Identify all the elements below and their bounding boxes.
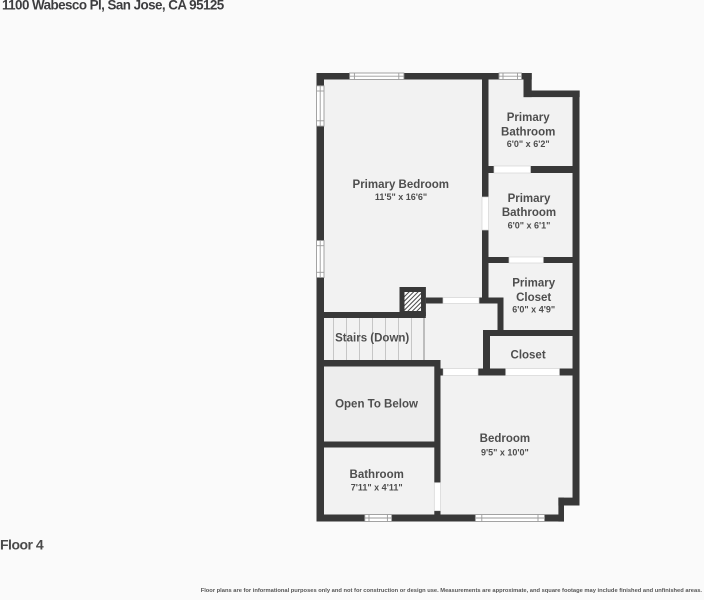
svg-text:Primary: Primary [508, 193, 551, 205]
svg-text:11'5" x 16'6": 11'5" x 16'6" [375, 192, 427, 202]
svg-text:Bedroom: Bedroom [480, 433, 530, 445]
svg-text:Floor 4: Floor 4 [0, 537, 44, 553]
svg-text:Primary Bedroom: Primary Bedroom [353, 179, 450, 191]
svg-text:6'0" x 4'9": 6'0" x 4'9" [512, 304, 555, 314]
svg-text:6'0" x 6'1": 6'0" x 6'1" [508, 220, 551, 230]
svg-text:Open To Below: Open To Below [335, 399, 418, 411]
svg-text:9'5" x 10'0": 9'5" x 10'0" [481, 448, 529, 458]
svg-text:1100 Wabesco Pl, San Jose, CA: 1100 Wabesco Pl, San Jose, CA 95125 [2, 0, 225, 13]
svg-text:Stairs (Down): Stairs (Down) [335, 333, 409, 345]
svg-text:Primary: Primary [512, 278, 555, 290]
svg-text:Closet: Closet [511, 349, 546, 361]
svg-text:Bathroom: Bathroom [350, 469, 404, 481]
svg-text:Floor plans are for informatio: Floor plans are for informational purpos… [201, 588, 703, 594]
svg-text:7'11" x 4'11": 7'11" x 4'11" [351, 483, 403, 493]
svg-text:6'0" x 6'2": 6'0" x 6'2" [507, 139, 550, 149]
svg-text:Bathroom: Bathroom [502, 207, 556, 219]
svg-text:Closet: Closet [516, 292, 551, 304]
svg-text:Primary: Primary [507, 112, 550, 124]
svg-text:Bathroom: Bathroom [501, 126, 555, 138]
